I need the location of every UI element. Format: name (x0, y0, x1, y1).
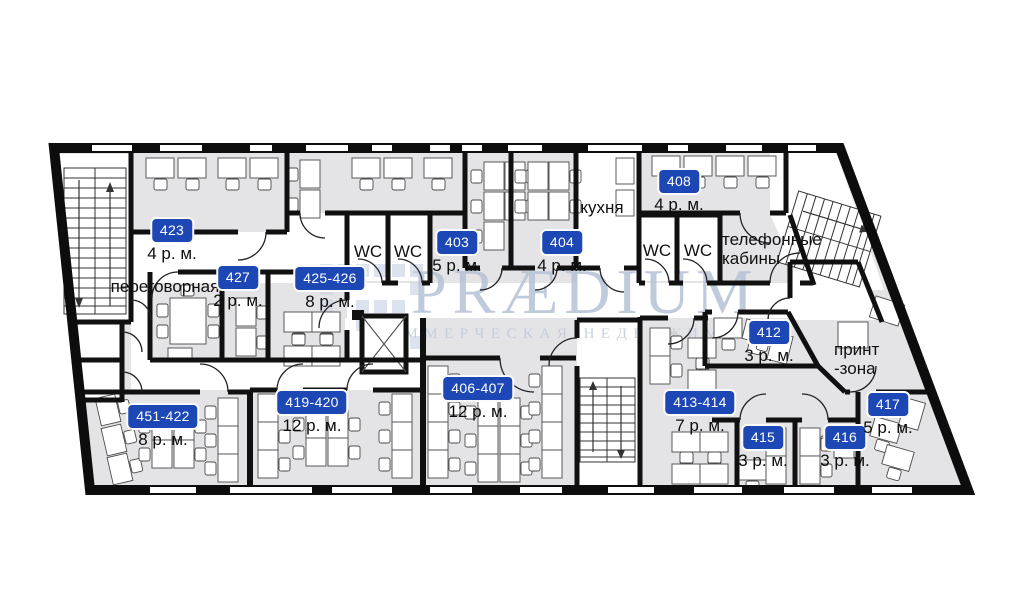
room-badge: 419-420 (275, 389, 348, 416)
room-badge: 427 (216, 264, 260, 291)
room-capacity: 3 р. м. (744, 346, 794, 366)
wc-label-4: WC (684, 241, 712, 261)
room-badge: 404 (540, 229, 584, 256)
room-capacity: 4 р. м. (147, 244, 197, 264)
meeting-room-label: переговорная (111, 277, 220, 297)
room-capacity: 8 р. м. (126, 430, 199, 450)
room-capacity: 12 р. м. (275, 416, 348, 436)
room-badge: 408 (657, 168, 701, 195)
wc-label-1: WC (354, 242, 382, 262)
room-badge: 415 (741, 424, 785, 451)
floor-plan: PRÆDIUM КОММЕРЧЕСКАЯ НЕДВИЖИМОСТЬ (0, 0, 1024, 597)
room-capacity: 8 р. м. (293, 292, 366, 312)
room-badge: 423 (150, 217, 194, 244)
room-label-412: 412 3 р. м. (744, 319, 794, 366)
room-capacity: 5 р. м. (863, 418, 913, 438)
wc-label-3: WC (643, 241, 671, 261)
room-badge: 406-407 (441, 375, 514, 402)
room-label-415: 415 3 р. м. (738, 424, 788, 471)
floor-plan-canvas: PRÆDIUM КОММЕРЧЕСКАЯ НЕДВИЖИМОСТЬ (0, 0, 1024, 597)
room-capacity: 5 р. м. (432, 256, 482, 276)
room-badge: 403 (435, 229, 479, 256)
room-label-425-426: 425-426 8 р. м. (293, 265, 366, 312)
room-capacity: 2 р. м. (213, 291, 263, 311)
room-badge: 416 (823, 424, 867, 451)
room-capacity: 4 р. м. (654, 195, 704, 215)
room-badge: 417 (866, 391, 910, 418)
room-label-403: 403 5 р. м. (432, 229, 482, 276)
room-label-404: 404 4 р. м. (537, 229, 587, 276)
room-label-451-422: 451-422 8 р. м. (126, 403, 199, 450)
room-badge: 451-422 (126, 403, 199, 430)
windows-bottom (150, 487, 912, 493)
phone-booths-label: телефонные кабины (722, 230, 822, 268)
room-capacity: 4 р. м. (537, 256, 587, 276)
room-label-423: 423 4 р. м. (147, 217, 197, 264)
room-label-427: 427 2 р. м. (213, 264, 263, 311)
room-capacity: 12 р. м. (441, 402, 514, 422)
room-capacity: 3 р. м. (738, 451, 788, 471)
room-label-408: 408 4 р. м. (654, 168, 704, 215)
room-label-406-407: 406-407 12 р. м. (441, 375, 514, 422)
room-label-417: 417 5 р. м. (863, 391, 913, 438)
room-label-413-414: 413-414 7 р. м. (663, 389, 736, 436)
room-badge: 425-426 (293, 265, 366, 292)
room-label-419-420: 419-420 12 р. м. (275, 389, 348, 436)
room-capacity: 3 р. м. (820, 451, 870, 471)
room-capacity: 7 р. м. (663, 416, 736, 436)
room-badge: 413-414 (663, 389, 736, 416)
elevator (352, 310, 406, 372)
print-zone-label: принт -зона (834, 340, 879, 378)
stairs-center (580, 378, 635, 462)
kitchen-label: кухня (580, 198, 623, 218)
room-badge: 412 (747, 319, 791, 346)
wc-label-2: WC (394, 242, 422, 262)
